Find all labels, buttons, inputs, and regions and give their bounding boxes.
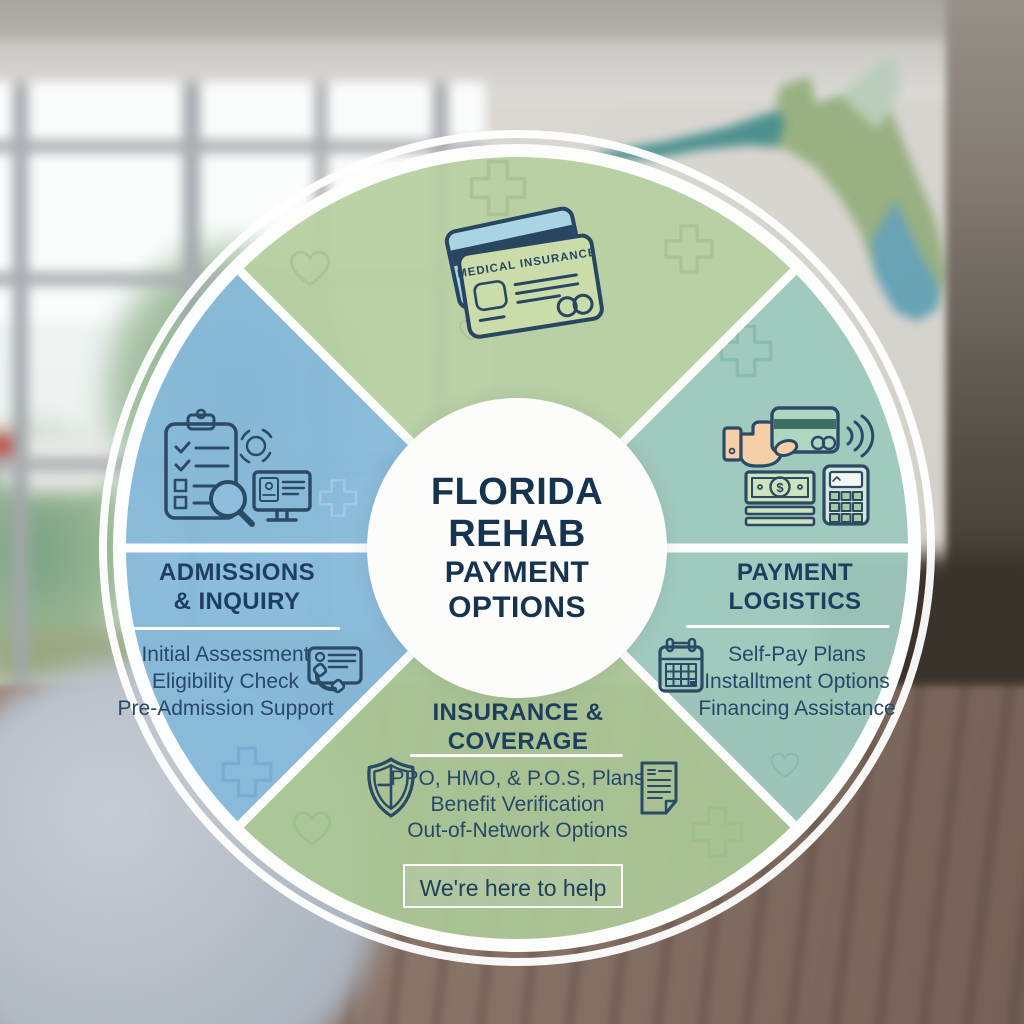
cash-icon: $	[746, 472, 814, 525]
admissions-divider	[133, 627, 340, 630]
list-item: PPO, HMO, & P.O.S, Plans	[385, 766, 650, 792]
insurance-divider	[410, 754, 623, 757]
list-item: Financing Assistance	[672, 695, 922, 722]
plus-watermark-icon	[689, 804, 745, 860]
heart-watermark-icon	[286, 246, 334, 290]
insurance-heading: INSURANCE & COVERAGE	[397, 698, 639, 756]
payment-list: Self-Pay Plans Installtment Options Fina…	[672, 641, 922, 722]
page-title-line4: OPTIONS	[448, 590, 586, 625]
document-icon	[637, 759, 681, 817]
heart-watermark-icon	[768, 749, 802, 781]
contactless-waves-icon	[848, 416, 873, 456]
heart-watermark-icon	[289, 807, 335, 849]
sync-icon	[241, 430, 271, 462]
list-item: Pre-Admission Support	[103, 695, 348, 722]
help-box: We're here to help	[403, 864, 623, 908]
window-mullion	[13, 82, 28, 707]
insurance-list: PPO, HMO, & P.O.S, Plans Benefit Verific…	[385, 766, 650, 844]
phone-contact-icon	[303, 643, 365, 697]
admissions-heading-line2: & INQUIRY	[117, 587, 357, 616]
dollar-symbol: $	[776, 480, 784, 495]
center-title-circle: FLORIDA REHAB PAYMENT OPTIONS	[367, 398, 667, 698]
calculator-icon	[824, 466, 868, 524]
payment-heading: PAYMENT LOGISTICS	[675, 558, 915, 616]
list-item: Installtment Options	[672, 668, 922, 695]
shield-icon	[364, 756, 418, 820]
admissions-heading-line1: ADMISSIONS	[117, 558, 357, 587]
admissions-heading: ADMISSIONS & INQUIRY	[117, 558, 357, 616]
admissions-icons	[150, 402, 315, 534]
infographic-scene: MEDICAL INSURANCE	[0, 0, 1024, 1024]
plus-watermark-icon	[717, 322, 775, 380]
page-title-line3: PAYMENT	[445, 555, 590, 590]
hand-card-tap-icon	[724, 408, 873, 466]
magnifier-handle	[240, 512, 252, 524]
plus-watermark-icon	[317, 477, 359, 519]
help-box-label: We're here to help	[420, 875, 607, 901]
calendar-icon	[657, 637, 705, 695]
plus-watermark-icon	[662, 222, 716, 276]
monitor-id-icon	[254, 472, 310, 520]
payment-heading-line1: PAYMENT	[675, 558, 915, 587]
page-title-line1: FLORIDA	[431, 471, 603, 513]
insurance-cards-icon: MEDICAL INSURANCE	[432, 193, 604, 345]
payment-icons: $	[702, 392, 892, 532]
insurance-heading-line2: COVERAGE	[397, 727, 639, 756]
page-title-line2: REHAB	[448, 513, 586, 555]
payment-heading-line2: LOGISTICS	[675, 587, 915, 616]
list-item: Benefit Verification	[385, 792, 650, 818]
list-item: Out-of-Network Options	[385, 818, 650, 844]
list-item: Self-Pay Plans	[672, 641, 922, 668]
insurance-heading-line1: INSURANCE &	[397, 698, 639, 727]
payment-divider	[686, 625, 890, 628]
